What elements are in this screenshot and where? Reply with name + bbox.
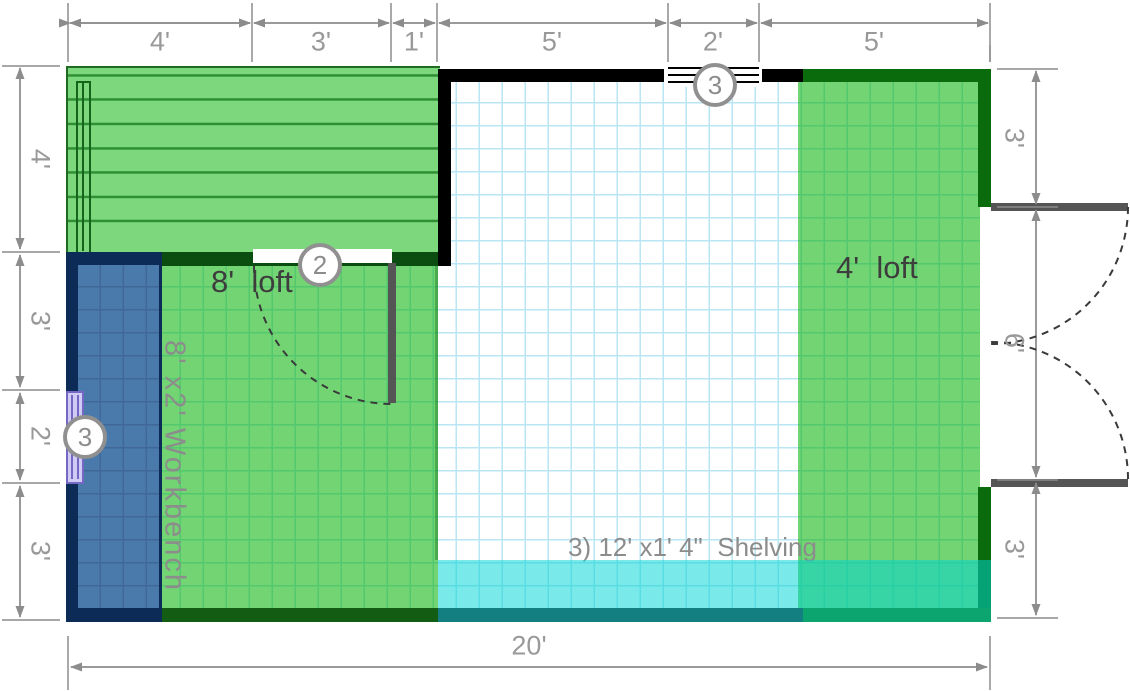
- dim-left-2ft: 2': [25, 426, 56, 446]
- dim-right-3ft-a: 3': [999, 128, 1030, 148]
- room-edge-line: [435, 266, 438, 560]
- loft-ladder[interactable]: [76, 81, 91, 257]
- loft4-label: 4' loft: [836, 250, 918, 286]
- shelving-strip[interactable]: [438, 560, 991, 608]
- double-door-bottom-leaf[interactable]: [991, 479, 1128, 487]
- loft-4ft-area[interactable]: [798, 82, 980, 608]
- wall-top-left-segment: [438, 69, 668, 82]
- dim-top-5ft-b: 5': [864, 27, 884, 58]
- wall-top-right-segment: [759, 69, 803, 82]
- left-window-tag[interactable]: 3: [63, 415, 107, 459]
- dim-left-4ft: 4': [25, 149, 56, 169]
- bottom-wall-tealgreen: [803, 608, 991, 622]
- dim-left-3ft-b: 3': [25, 541, 56, 561]
- dim-top-1ft: 1': [404, 27, 424, 58]
- right-wall-upper: [978, 69, 991, 207]
- dim-top-5ft-a: 5': [542, 27, 562, 58]
- interior-door-tag[interactable]: 2: [298, 243, 342, 287]
- bottom-wall-green: [162, 608, 438, 622]
- top-window-tag[interactable]: 3: [693, 63, 737, 107]
- loft-8ft-area[interactable]: [66, 66, 440, 254]
- ladder-rail: [82, 83, 84, 251]
- dim-top-4ft: 4': [150, 27, 170, 58]
- dim-right-6ft: 6': [999, 333, 1030, 353]
- dim-top-2ft: 2': [703, 27, 723, 58]
- bottom-wall-teal: [438, 608, 803, 622]
- shelving-label: 3) 12' x1' 4" Shelving: [568, 532, 817, 563]
- dim-bottom-20ft: 20': [511, 631, 546, 662]
- floor-plan-canvas: 3) 12' x1' 4" Shelving 8' loft 8' x2' Wo…: [0, 0, 1130, 691]
- dim-left-3ft-a: 3': [25, 311, 56, 331]
- dim-right-3ft-b: 3': [999, 539, 1030, 559]
- interior-door-leaf[interactable]: [388, 263, 396, 403]
- loft8-label: 8' loft: [211, 264, 293, 300]
- double-door-top-leaf[interactable]: [991, 203, 1128, 211]
- workbench-label: 8' x2' Workbench: [158, 340, 191, 592]
- wall-vertical-segment: [438, 69, 451, 266]
- dim-top-3ft: 3': [311, 27, 331, 58]
- loft4-top-wall: [803, 69, 991, 82]
